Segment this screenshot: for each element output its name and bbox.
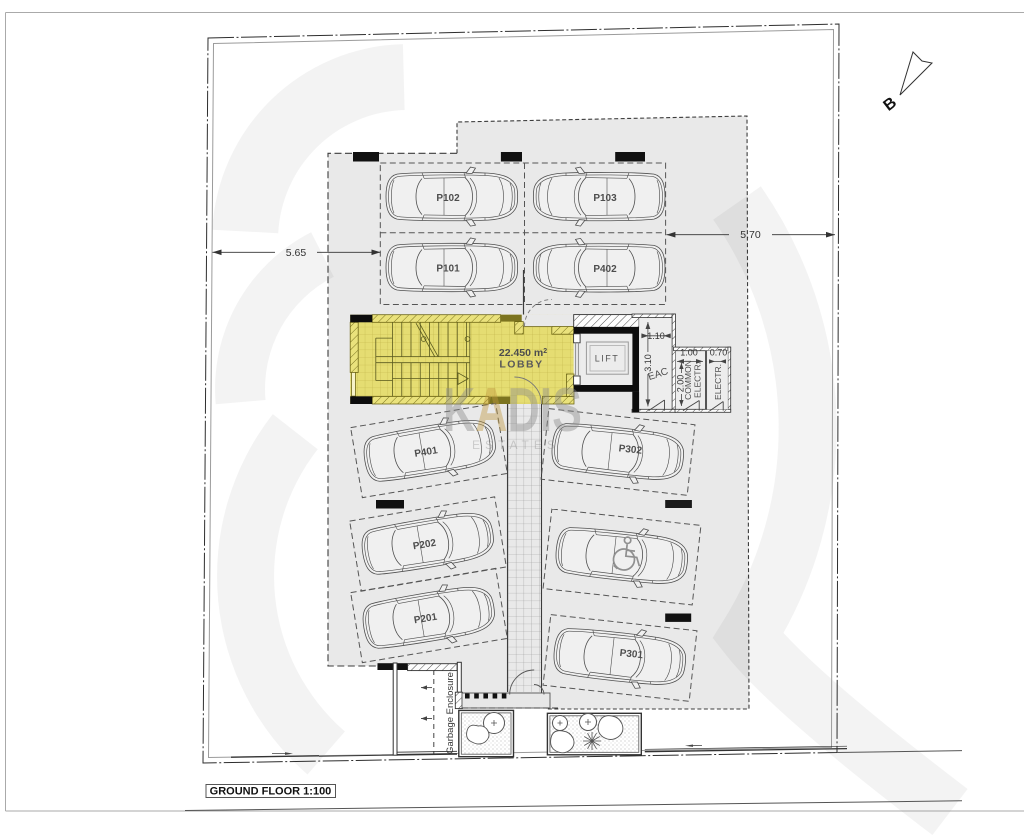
svg-text:P402: P402 [593,264,617,275]
svg-text:22.450 m2: 22.450 m2 [499,347,547,359]
svg-text:1.00: 1.00 [680,348,698,358]
svg-text:1.10: 1.10 [647,331,665,341]
svg-text:ELECTR.: ELECTR. [693,362,703,398]
svg-text:P101: P101 [436,264,460,275]
svg-text:COMMON: COMMON [683,360,693,400]
svg-text:P103: P103 [593,193,617,204]
svg-text:LOBBY: LOBBY [499,359,543,371]
svg-text:5.65: 5.65 [286,247,307,259]
svg-text:ESTATES: ESTATES [472,438,560,452]
svg-text:LIFT: LIFT [595,354,620,364]
svg-text:5.70: 5.70 [740,229,761,241]
svg-text:P102: P102 [436,193,460,204]
svg-text:GROUND FLOOR 1:100: GROUND FLOOR 1:100 [210,786,332,798]
svg-text:3.10: 3.10 [643,354,653,372]
svg-text:KADIS: KADIS [443,376,582,445]
svg-text:Garbage Enclosure: Garbage Enclosure [445,672,456,754]
svg-text:0.70: 0.70 [710,348,728,358]
svg-text:B: B [880,94,900,115]
svg-text:ELECTR.: ELECTR. [713,364,723,400]
